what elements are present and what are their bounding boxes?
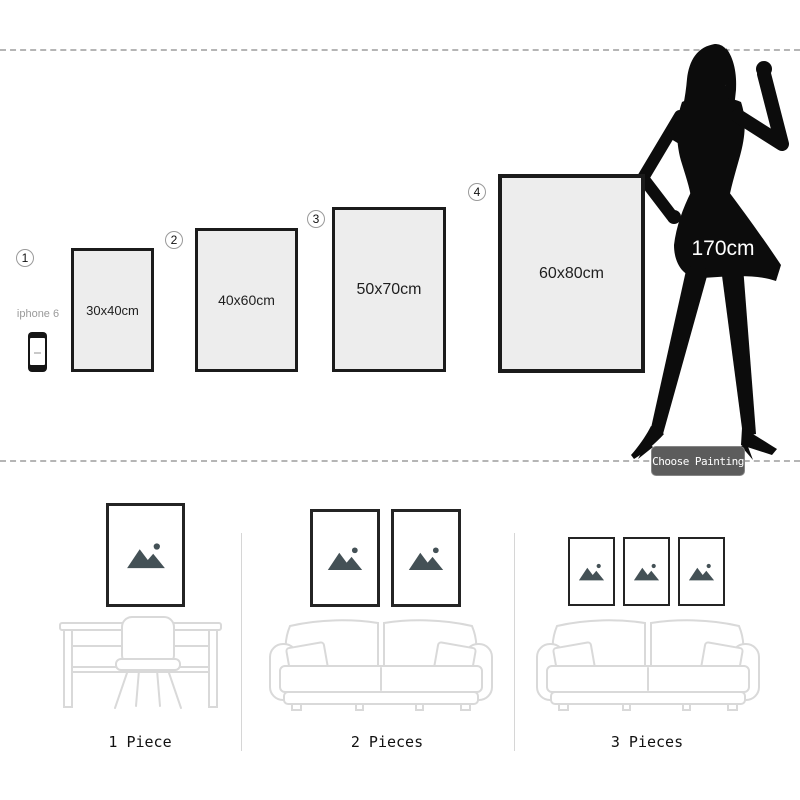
scene-divider-2 <box>514 533 515 751</box>
choose-painting-button[interactable]: Choose Painting <box>651 446 745 476</box>
iphone-screen <box>30 338 45 365</box>
piece-option-3-label: 3 Pieces <box>567 733 727 751</box>
size-frame-30x40-label: 30x40cm <box>86 303 139 318</box>
image-placeholder-icon <box>633 563 660 581</box>
iphone-reference-label: iphone 6 <box>8 308 68 320</box>
size-frame-60x80: 60x80cm <box>498 174 645 373</box>
size-frame-40x60-label: 40x60cm <box>218 292 275 308</box>
image-placeholder-icon <box>126 542 166 569</box>
person-height-label: 170cm <box>691 237 754 260</box>
piece-option-2-label: 2 Pieces <box>307 733 467 751</box>
image-placeholder-icon <box>578 563 605 581</box>
frame-number-badge-1: 1 <box>16 249 34 267</box>
desk-and-chair-illustration <box>58 615 223 715</box>
size-frame-30x40: 30x40cm <box>71 248 154 372</box>
sofa-illustration-2pieces <box>268 612 494 712</box>
wall-frame-3piece-left <box>568 537 615 606</box>
image-placeholder-icon <box>408 546 444 571</box>
sofa-icon <box>535 612 761 712</box>
iphone-screen-dash <box>34 352 41 354</box>
wall-frame-1piece <box>106 503 185 607</box>
iphone-icon <box>28 332 47 372</box>
image-placeholder-icon <box>327 546 363 571</box>
size-frame-50x70: 50x70cm <box>332 207 446 372</box>
size-frame-40x60: 40x60cm <box>195 228 298 372</box>
frame-number-badge-2: 2 <box>165 231 183 249</box>
sofa-icon <box>268 612 494 712</box>
wall-frame-2piece-left <box>310 509 380 607</box>
wall-frame-2piece-right <box>391 509 461 607</box>
piece-option-1-label: 1 Piece <box>60 733 220 751</box>
woman-height-reference: 170cm <box>630 42 790 462</box>
wall-frame-3piece-right <box>678 537 725 606</box>
frame-number-badge-4: 4 <box>468 183 486 201</box>
frame-number-badge-3: 3 <box>307 210 325 228</box>
wall-frame-3piece-center <box>623 537 670 606</box>
size-frame-60x80-label: 60x80cm <box>539 265 604 283</box>
sofa-illustration-3pieces <box>535 612 761 712</box>
size-frame-50x70-label: 50x70cm <box>357 281 422 299</box>
woman-silhouette-icon: 170cm <box>630 42 790 462</box>
scene-divider-1 <box>241 533 242 751</box>
desk-chair-icon <box>58 615 223 715</box>
image-placeholder-icon <box>688 563 715 581</box>
size-guide-infographic: 1 2 3 4 30x40cm 40x60cm 50x70cm 60x80cm … <box>0 0 800 800</box>
